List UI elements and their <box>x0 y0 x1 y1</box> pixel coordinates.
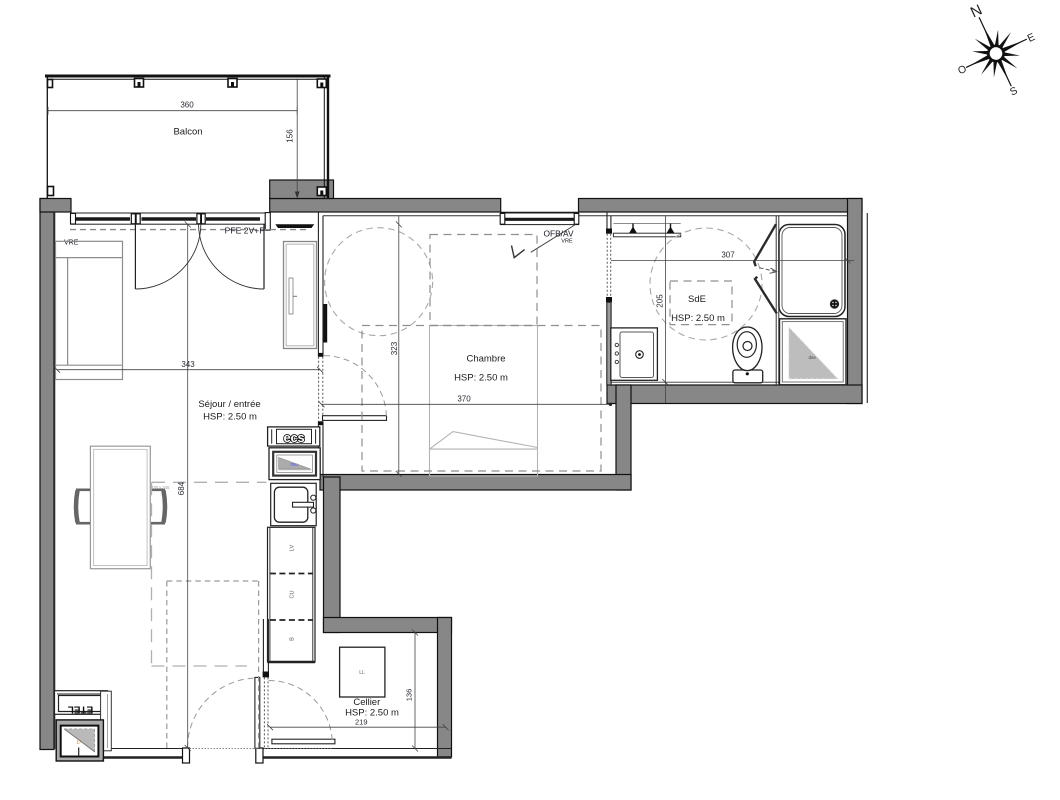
svg-text:370: 370 <box>457 395 471 404</box>
svg-text:Chambre: Chambre <box>466 353 505 364</box>
svg-text:HSP: 2.50 m: HSP: 2.50 m <box>671 313 725 324</box>
svg-text:B: B <box>290 637 296 641</box>
svg-text:360: 360 <box>180 101 194 110</box>
svg-text:Cellier: Cellier <box>353 697 380 708</box>
svg-text:SdE: SdE <box>688 294 706 305</box>
svg-text:VRE: VRE <box>561 238 573 244</box>
svg-text:HSP: 2.50 m: HSP: 2.50 m <box>203 412 257 423</box>
svg-text:330 x 345: 330 x 345 <box>151 485 170 490</box>
svg-text:ETEL: ETEL <box>68 703 94 714</box>
svg-text:dse: dse <box>809 355 817 360</box>
svg-text:CU: CU <box>290 590 296 598</box>
svg-text:ecs: ecs <box>283 430 304 445</box>
svg-text:OFB/AV: OFB/AV <box>543 229 574 239</box>
svg-text:323: 323 <box>390 341 399 355</box>
svg-text:156: 156 <box>286 129 295 143</box>
svg-text:VRE: VRE <box>64 240 79 247</box>
svg-text:17: 17 <box>77 740 82 745</box>
svg-text:Balcon: Balcon <box>173 127 202 138</box>
svg-text:HSP: 2.50 m: HSP: 2.50 m <box>454 372 508 383</box>
svg-text:307: 307 <box>721 250 735 259</box>
svg-text:136: 136 <box>405 689 414 702</box>
svg-text:Séjour / entrée: Séjour / entrée <box>198 399 260 410</box>
svg-text:LL: LL <box>359 670 365 676</box>
svg-text:HSP: 2.50 m: HSP: 2.50 m <box>345 707 399 718</box>
svg-text:205: 205 <box>656 294 665 308</box>
svg-text:343: 343 <box>181 360 195 369</box>
svg-text:219: 219 <box>355 718 368 727</box>
svg-text:LV: LV <box>290 545 296 552</box>
svg-text:05u: 05u <box>291 462 299 467</box>
svg-text:PFE 2V+P: PFE 2V+P <box>225 225 266 235</box>
svg-text:684: 684 <box>177 481 186 495</box>
